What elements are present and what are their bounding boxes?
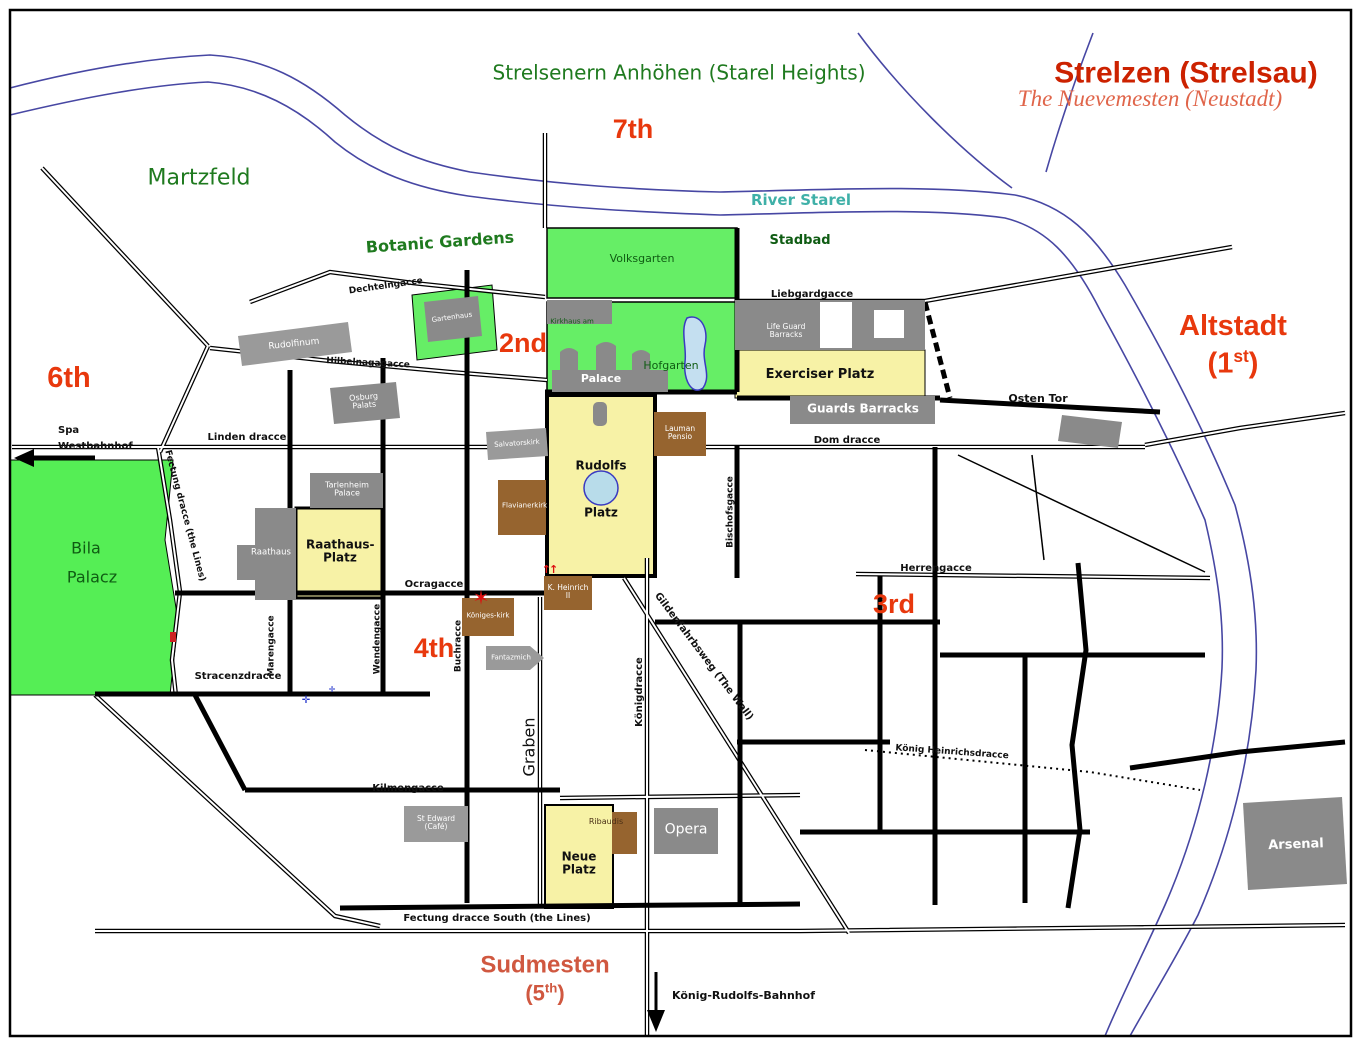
tarlenheim-palace-label: Tarlenheim Palace	[316, 482, 378, 499]
map-title: Strelzen (Strelsau)	[1054, 57, 1317, 89]
region-sudmesten-number: (5th)	[525, 981, 564, 1004]
st-edward-label: St Edward (Café)	[410, 815, 462, 831]
platz-statue	[593, 402, 607, 426]
palace-label: Palace	[581, 373, 621, 385]
river-starel-label: River Starel	[751, 193, 851, 209]
street-bischofs: Bischofsgacce	[726, 476, 735, 548]
region-altstadt-number: (1st)	[1208, 347, 1259, 379]
street-graben: Graben	[522, 718, 539, 777]
district-7th: 7th	[613, 115, 654, 143]
bila-palacz-label-2: Palacz	[67, 570, 117, 587]
platz-fountain	[584, 471, 618, 505]
red-arrows-icon: ↑↑	[542, 564, 556, 576]
stadbad-label: Stadbad	[769, 234, 830, 248]
opera-label: Opera	[665, 823, 708, 838]
koenigeskirk-label: Königes-kirk	[465, 612, 511, 619]
strelzen-city-map: Strelzen (Strelsau) The Nuevemesten (Neu…	[0, 0, 1363, 1047]
street-wenden: Wendengacce	[373, 604, 382, 674]
neue-platz-label: Neue Platz	[556, 850, 602, 875]
ribaudis-label: Ribaudis	[589, 818, 623, 826]
guards-barracks-label: Guards Barracks	[807, 403, 919, 416]
bila-palacz-label-1: Bila	[71, 541, 101, 558]
region-starel-heights: Strelsenern Anhöhen (Starel Heights)	[492, 63, 865, 84]
fantazmich-label: Fantazmich	[491, 654, 531, 661]
street-maren: Marengacce	[267, 615, 276, 676]
kirkhaus-label: Kirkhaus am	[550, 318, 594, 325]
red-star-icon: ✶	[473, 588, 490, 609]
volksgarten-label: Volksgarten	[610, 253, 675, 265]
region-martzfeld: Martzfeld	[147, 166, 250, 189]
red-mark	[170, 632, 176, 642]
hofgarten-pond	[684, 317, 707, 390]
raathaus-label: Raathaus	[251, 549, 291, 558]
street-dom: Dom dracce	[814, 436, 881, 447]
street-ocra: Ocragacce	[405, 580, 464, 591]
region-sudmesten: Sudmesten	[480, 952, 609, 977]
k-heinrich-label: K. Heinrich II	[546, 584, 590, 600]
raathaus-platz-label: Raathaus-Platz	[306, 538, 374, 563]
street-kilmen: Kilmengacce	[372, 784, 443, 795]
map-canvas	[0, 0, 1363, 1047]
district-3rd: 3rd	[873, 590, 915, 618]
rudolfs-platz-label-1: Rudolfs	[575, 460, 626, 473]
map-subtitle: The Nuevemesten (Neustadt)	[1018, 87, 1282, 111]
life-guard-barracks-label: Life Guard Barracks	[757, 323, 815, 339]
koenig-rudolfs-bahnhof-label: König-Rudolfs-Bahnhof	[672, 990, 815, 1002]
street-buch: Buchracce	[454, 620, 463, 672]
street-liebgard: Liebgardgacce	[771, 290, 853, 301]
street-herren: Herrengacce	[900, 564, 971, 575]
osten-tor-building	[1058, 415, 1122, 448]
koenig-heinrichs-street	[865, 750, 1200, 790]
street-fectung-south: Fectung dracce South (the Lines)	[403, 914, 590, 925]
hofgarten-label: Hofgarten	[643, 360, 698, 372]
station-arrow-head	[647, 1010, 665, 1032]
map-frame	[10, 10, 1351, 1036]
altstadt-lanes	[958, 455, 1205, 572]
district-6th: 6th	[47, 363, 91, 393]
spa-westbahnhof-label-2: Westbahnhof	[58, 442, 133, 453]
barracks-courtyard-2	[874, 310, 904, 338]
flavianerkirk-label: Flavianerkirk	[502, 502, 542, 509]
lauman-pensio-label: Lauman Pensio	[658, 425, 702, 441]
arsenal-label: Arsenal	[1268, 837, 1324, 853]
street-linden: Linden dracce	[208, 433, 287, 444]
blue-cross-icon-2: ✛	[329, 686, 336, 694]
barracks-courtyard	[820, 302, 852, 348]
osten-tor-label: Osten Tor	[1008, 393, 1067, 405]
district-2nd: 2nd	[499, 329, 547, 357]
district-4th: 4th	[414, 634, 455, 662]
street-koenigdracce: Königdracce	[635, 657, 646, 727]
dashed-street	[925, 302, 950, 398]
rudolfs-platz-label-2: Platz	[584, 507, 618, 520]
spa-westbahnhof-label-1: Spa	[58, 426, 79, 437]
region-altstadt: Altstadt	[1179, 311, 1287, 341]
exerciser-platz-label: Exerciser Platz	[766, 368, 875, 382]
blue-cross-icon: ✛	[302, 696, 310, 707]
